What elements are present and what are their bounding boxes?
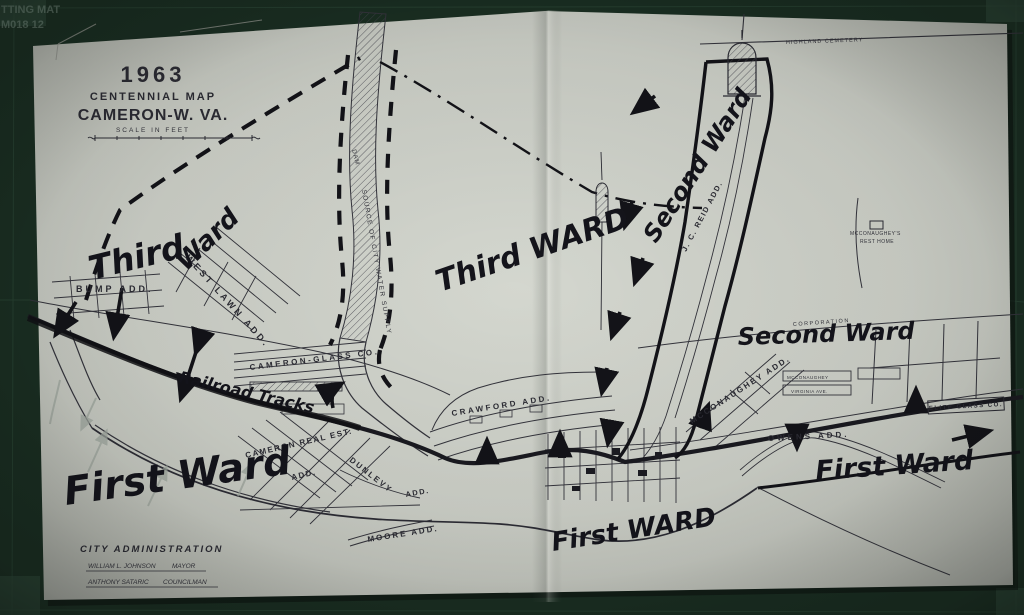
paper-fold-crease <box>532 10 562 602</box>
admin-councilman-title: COUNCILMAN <box>163 579 207 586</box>
title-scale-label: SCALE IN FEET <box>116 127 190 134</box>
admin-councilman-name: ANTHONY SATARIC <box>87 579 149 586</box>
admin-mayor-title: MAYOR <box>172 563 196 570</box>
label-block-mcconaughey: MCCONAUGHEY <box>787 375 829 380</box>
admin-heading: CITY ADMINISTRATION <box>80 544 223 555</box>
label-rest-home-2: REST HOME <box>860 239 894 245</box>
title-subtitle: CENTENNIAL MAP <box>90 91 216 103</box>
label-bump-add: BUMP ADD. <box>76 284 154 294</box>
admin-mayor-name: WILLIAM L. JOHNSON <box>88 563 156 570</box>
label-block-virginia: VIRGINIA AVE. <box>791 389 828 394</box>
mat-brand-text-line2: M018 12 <box>1 19 44 31</box>
title-year: 1963 <box>121 62 186 87</box>
map-photo-canvas: TTING MAT M018 12 <box>0 0 1024 615</box>
mat-brand-text-line1: TTING MAT <box>1 4 60 16</box>
photo-of-map: TTING MAT M018 12 <box>0 0 1024 615</box>
title-city: CAMERON-W. VA. <box>78 107 229 124</box>
label-rest-home-1: MCCONAUGHEY'S <box>850 231 901 237</box>
